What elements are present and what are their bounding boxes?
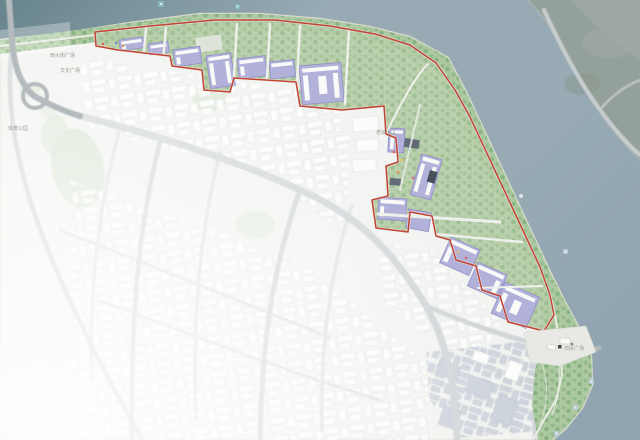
haze-overlay xyxy=(0,0,640,440)
masterplan-map: 西大街广场 文化广场 体育公园 老城小区 市民广场 xyxy=(0,0,640,440)
masterplan-map-svg: 西大街广场 文化广场 体育公园 老城小区 市民广场 xyxy=(0,0,640,440)
